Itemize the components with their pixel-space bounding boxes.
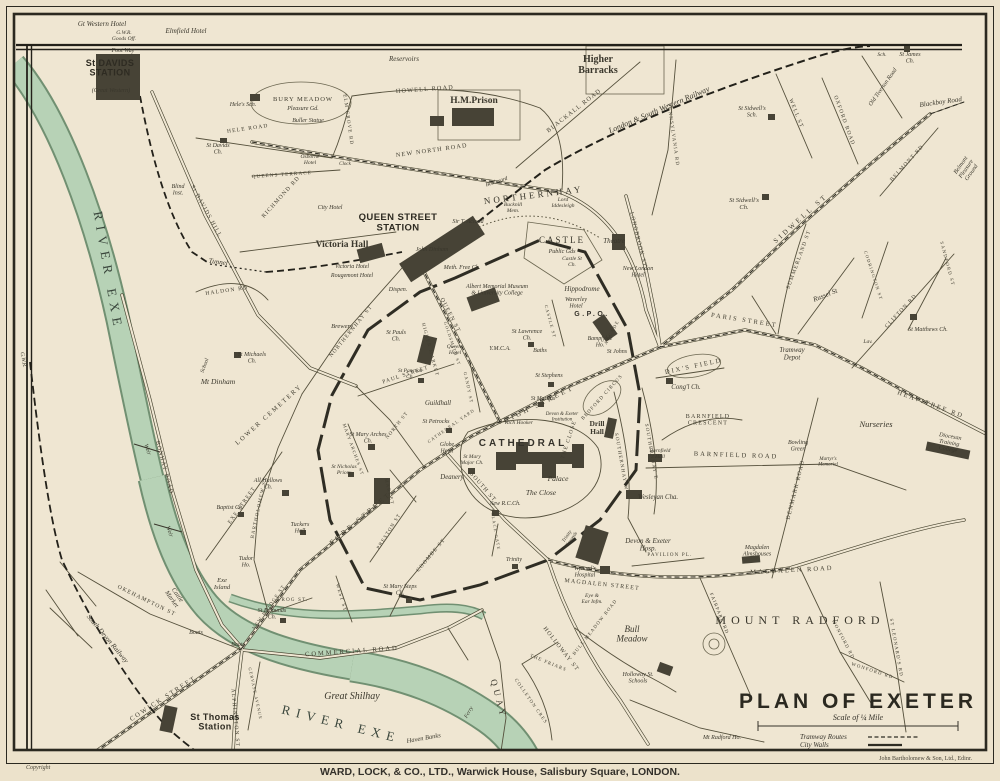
map-label-victoria-hotel: Victoria Hotel [335,264,369,270]
map-label-hm-prison: H.M.Prison [450,96,498,106]
map-label-theatre: Theatre [603,237,625,245]
map-label-castle: CASTLE [539,235,585,245]
legend-tramway-label: Tramway Routes [800,733,847,741]
publisher-imprint: WARD, LOCK, & CO., LTD., Warwick House, … [320,766,680,778]
map-label-mount-radford: MOUNT RADFORD [715,613,884,627]
scale-label: Scale of ¼ Mile [833,713,884,722]
map-label-baptist-ch: Baptist Ch. [216,505,243,511]
map-label-bury-meadow: BURY MEADOW [273,96,333,103]
map-label-queens-hotel: QueensHotel [447,344,464,356]
map-label-reservoirs: Reservoirs [388,55,419,63]
map-label-gt-western-hotel: Gt Western Hotel [78,20,126,28]
map-label-boats-2: Boats [231,642,245,648]
map-label-st-martins: St Martins [531,396,556,402]
map-label-wesleyan-cha: Wesleyan Cha. [638,494,678,501]
map-label-bury-meadow-sub: Pleasure Gd. [286,106,318,112]
church-block [512,564,518,569]
map-label-congl-ch: Cong'l Ch. [671,384,701,391]
map-label-museum: Albert Memorial Museum& University Colle… [465,284,529,296]
map-canvas: Gt Western HotelElmfield HotelG.W.R.Good… [0,0,1000,781]
map-label-barnfield-crescent: BARNFIELDCRESCENT [686,414,730,426]
church-block [280,618,286,623]
church-block [418,378,424,383]
map-label-mt-dinham: Mt Dinham [200,377,236,386]
cartographer-imprint: John Bartholomew & Son, Ltd., Edinr. [879,756,972,762]
hm-prison-block-2 [430,116,444,126]
map-label-great-shilhay: Great Shilhay [324,691,380,702]
legend-city-walls-label: City Walls [800,741,829,749]
map-label-baths: Baths [533,348,547,354]
map-label-gpo: G.P.O. [574,311,610,318]
map-label-st-davids-station: St DAVIDSSTATION [86,58,134,78]
map-label-lav: Lav. [862,339,872,345]
map-label-clock: Clock [339,162,351,167]
map-label-cathedral: CATHEDRAL [479,438,567,449]
map-label-castle-sub: Public Gds [548,249,576,255]
map-label-sir-t-acland: Sir T. Acland [452,219,484,225]
copyright-note: Copyright [26,765,51,771]
map-label-martyrs-memorial: Martyr'sMemorial [817,457,838,467]
map-page: Gt Western HotelElmfield HotelG.W.R.Good… [0,0,1000,781]
map-label-boats-1: Boats [189,630,203,636]
map-label-frog-st: FROG ST. [278,598,309,603]
map-label-palace: Palace [547,474,569,483]
church-block [768,114,775,120]
map-label-st-petrocks: St Petrocks [423,419,451,425]
map-label-guildhall: Guildhall [425,400,451,407]
map-label-elmfield-hotel: Elmfield Hotel [164,27,206,35]
map-label-st-johns: St Johns [607,349,628,355]
map-label-nurseries: Nurseries [858,419,893,429]
map-label-dispensary: Dispen. [388,287,408,293]
map-label-the-close: The Close [526,488,557,497]
map-label-foot-way: Foot Way [111,48,135,54]
map-label-st-matthews-ch: St Matthews Ch. [908,327,948,333]
map-label-drill-hall: DrillHall [590,419,605,436]
map-label-pavilion-pl: PAVILION PL. [647,553,692,558]
map-label-victoria-hall: Victoria Hall [316,240,369,250]
wynards-block [600,566,610,574]
map-label-heles-sch: Hele's Sch. [229,102,257,108]
map-label-globe-hotel: GlobeHotel [440,442,455,454]
map-label-sch: Sch. [877,52,886,58]
map-label-deanery: Deanery [439,474,464,481]
church-block [548,382,554,387]
church-block [406,598,412,603]
map-label-rougemont-hotel: Rougemont Hotel [330,273,373,279]
map-label-brewery: Brewery [331,323,353,330]
map-label-higher-barracks: HigherBarracks [578,54,618,76]
map-label-mt-radford-ho: Mt Radford Ho. [702,734,741,741]
church-block [910,314,917,320]
map-label-wynards-hospital: Wynard'sHospital [574,566,597,578]
map-label-st-davids-station-sub: (Great Western) [92,87,130,94]
map-label-hippodrome: Hippodrome [563,285,599,293]
map-label-meth-free-ch: Meth. Free Ch. [443,265,480,271]
map-label-magdalen-almshouses: MagdalenAlmshouses [742,545,772,557]
map-label-john-dinham: John Dinham [416,247,449,253]
church-block [762,194,769,200]
hm-prison-block [452,108,494,126]
map-label-trinity-ch: Trinity [506,557,522,563]
map-title: PLAN OF EXETER [739,690,977,713]
map-label-st-mary-major: St MaryMajor Ch. [460,454,484,466]
church-block [282,490,289,496]
heles-sch-block [250,94,260,101]
map-label-st-stephens: St Stephens [535,373,563,379]
map-label-ymca: Y.M.C.A. [489,346,510,352]
church-block [368,444,375,450]
map-label-bowling-green: BowlingGreen [788,440,808,452]
map-label-city-hotel: City Hotel [318,205,343,211]
map-label-buller-statue: Buller Statue [292,118,324,124]
church-block [528,342,534,347]
map-label-rich-hooker: Rich Hooker [504,420,534,426]
